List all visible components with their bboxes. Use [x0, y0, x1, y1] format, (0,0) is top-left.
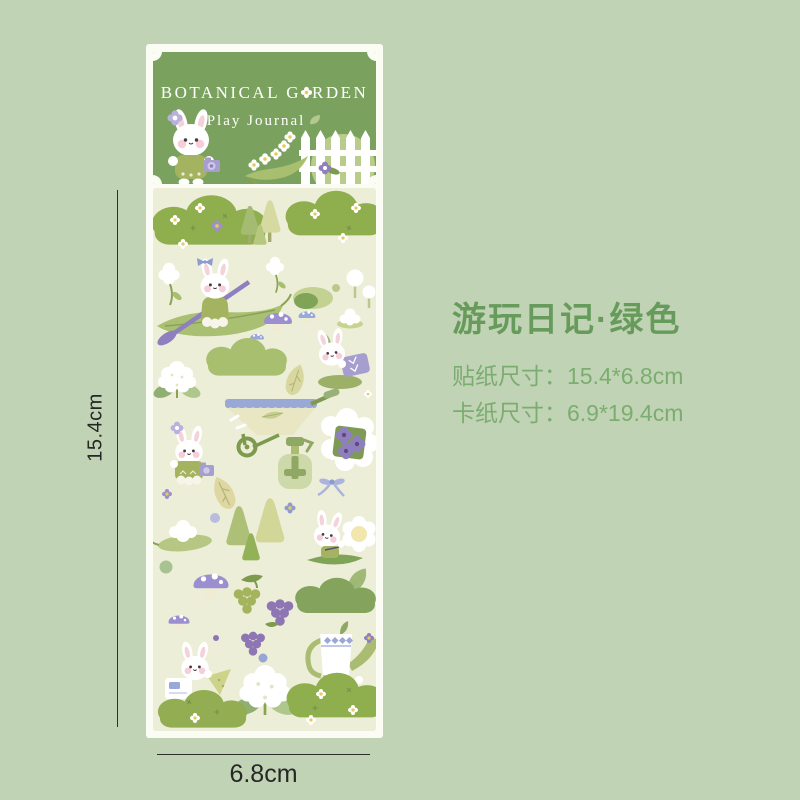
spec-label: 贴纸尺寸： [452, 363, 567, 389]
sticker-sheet [153, 188, 376, 731]
sticker-pine-trees-mid [226, 498, 284, 560]
sticker-product-card: BOTANICAL GRDEN Play Journal [146, 44, 383, 738]
sticker-white-tulip [158, 263, 183, 305]
spec-sticker-size: 贴纸尺寸：15.4*6.8cm [452, 358, 683, 395]
card-title-right: RDEN [312, 83, 368, 102]
sticker-bunny-with-book [315, 327, 370, 389]
sticker-purple-mushroom [194, 573, 229, 599]
sticker-green-hill [206, 338, 287, 376]
corner-notch [153, 52, 162, 61]
leaf [208, 473, 239, 512]
card-header: BOTANICAL GRDEN Play Journal [153, 52, 376, 184]
sticker-flower-gift-wrap [321, 408, 376, 471]
sticker-bunny-with-camera [170, 422, 214, 486]
sticker-purple-flower [162, 489, 172, 499]
sticker-sheet-art [153, 188, 376, 731]
bunny-with-camera-illustration [167, 108, 220, 184]
small-white-flower [364, 390, 372, 398]
width-dimension-label: 6.8cm [157, 760, 370, 789]
height-dimension-line [117, 190, 118, 727]
spec-value: 6.9*19.4cm [567, 400, 683, 426]
product-title: 游玩日记·绿色 [452, 292, 681, 341]
header-illustration [153, 104, 376, 184]
sticker-flower-on-lilypad [337, 309, 363, 329]
purple-dot [213, 635, 219, 641]
sticker-bunny-with-big-flower [307, 508, 376, 564]
lavender-dot [210, 513, 220, 523]
product-specs: 贴纸尺寸：15.4*6.8cm 卡纸尺寸：6.9*19.4cm [452, 358, 683, 432]
sticker-bush-top-right [286, 191, 376, 236]
sticker-purple-mushroom [169, 615, 190, 631]
spec-card-size: 卡纸尺寸：6.9*19.4cm [452, 395, 683, 432]
width-dimension-line [157, 754, 370, 755]
garland-flowers [248, 131, 295, 170]
picket-fence-illustration [299, 130, 376, 184]
sticker-cloud-bush [295, 578, 376, 613]
sticker-spray-bottle [278, 437, 312, 489]
product-page: BOTANICAL GRDEN Play Journal [0, 0, 800, 800]
spec-label: 卡纸尺寸： [452, 400, 567, 426]
height-dimension-label: 15.4cm [85, 391, 108, 465]
sticker-cauliflower-bouquet [153, 361, 202, 401]
spec-value: 15.4*6.8cm [567, 363, 683, 389]
sticker-watering-can [308, 621, 376, 681]
leaf [283, 362, 309, 397]
flower-garland-illustration [245, 131, 308, 184]
sticker-white-round-trees [347, 270, 376, 309]
sticker-blue-flower [285, 503, 296, 514]
sticker-blue-mushroom [299, 311, 316, 324]
sticker-grape-bunches [234, 575, 294, 656]
sticker-green-mound [293, 287, 333, 309]
corner-notch [367, 52, 376, 61]
sticker-bunny-journaling [165, 641, 231, 699]
ribbon-bow-icon [318, 478, 345, 496]
sticker-flower-on-leaf [153, 520, 213, 554]
sticker-wheelbarrow [225, 392, 336, 456]
sticker-white-tulip [266, 257, 287, 293]
sage-dot [160, 561, 173, 574]
green-dot [332, 284, 340, 292]
blue-dot [259, 654, 268, 663]
card-title-left: BOTANICAL G [161, 83, 301, 102]
card-title: BOTANICAL GRDEN [153, 83, 376, 104]
